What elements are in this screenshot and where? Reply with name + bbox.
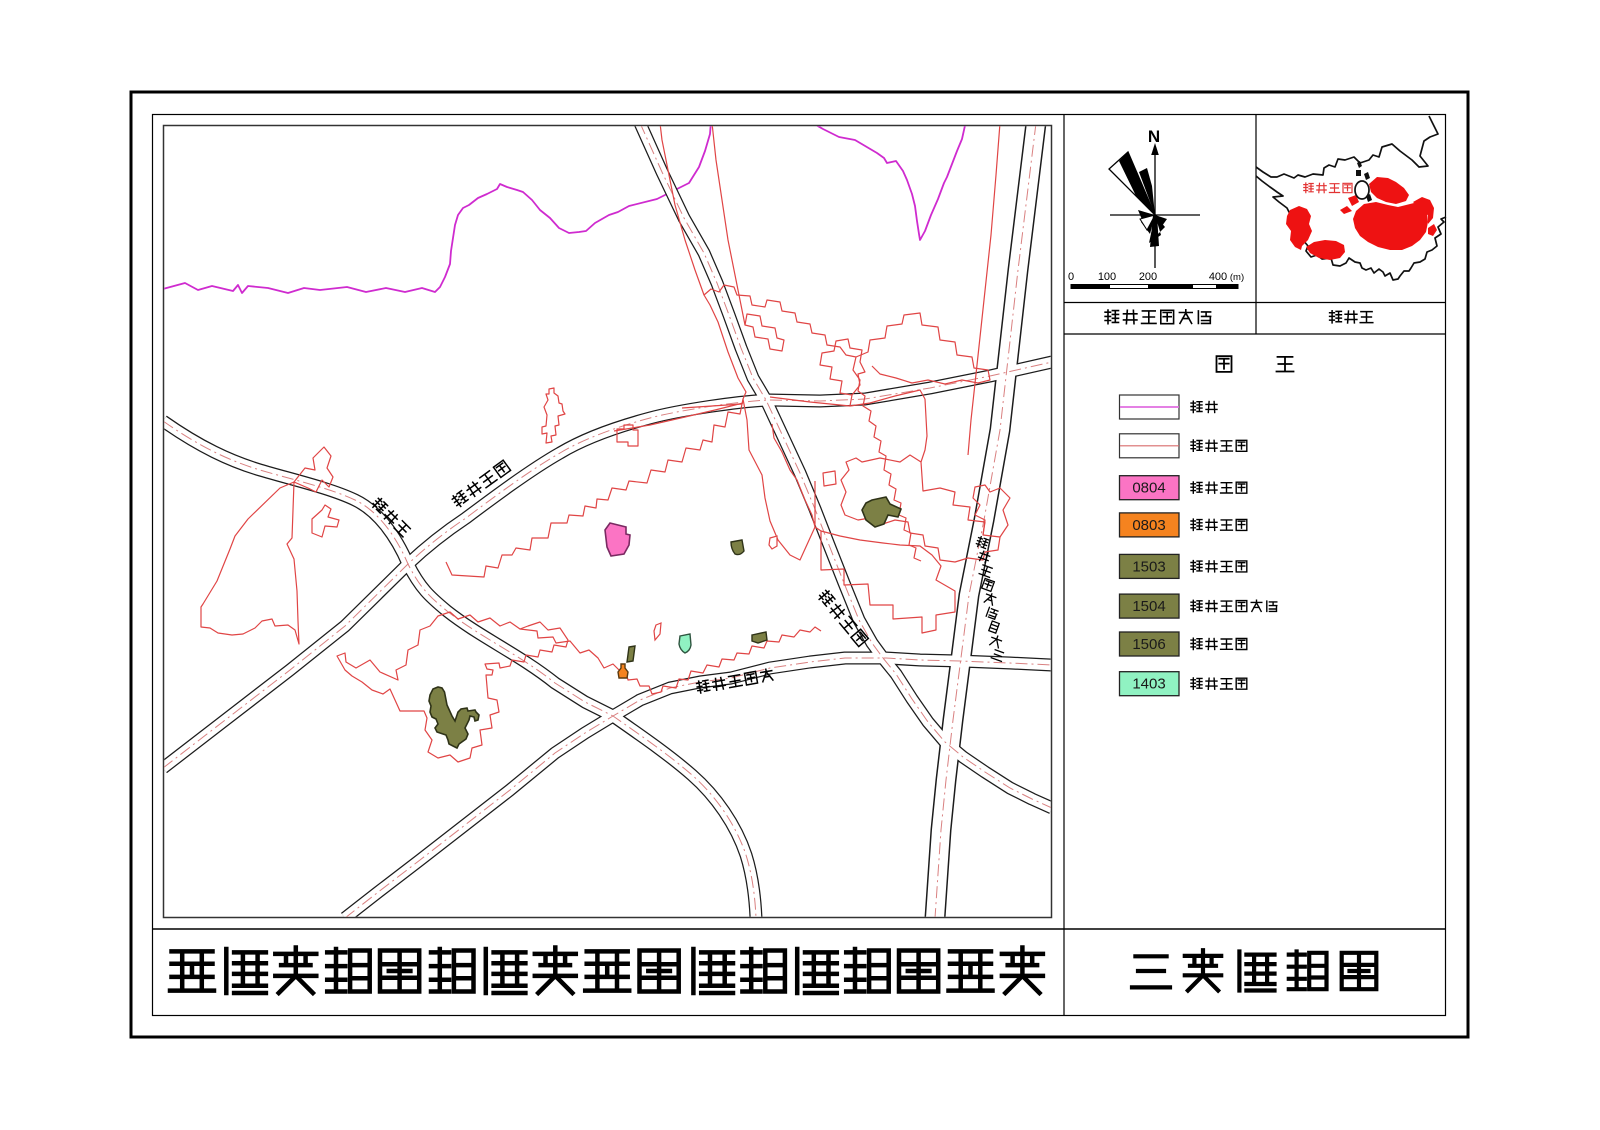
svg-text:N: N xyxy=(1148,127,1160,146)
svg-text:0803: 0803 xyxy=(1132,517,1165,534)
svg-text:1503: 1503 xyxy=(1132,558,1165,575)
svg-text:0: 0 xyxy=(1068,271,1074,283)
svg-text:1504: 1504 xyxy=(1132,598,1165,615)
svg-text:(m): (m) xyxy=(1230,272,1244,283)
svg-text:1506: 1506 xyxy=(1132,636,1165,653)
svg-text:400: 400 xyxy=(1209,271,1227,283)
svg-text:1403: 1403 xyxy=(1132,676,1165,693)
svg-text:100: 100 xyxy=(1098,271,1116,283)
svg-text:200: 200 xyxy=(1139,271,1157,283)
svg-text:0804: 0804 xyxy=(1132,480,1165,497)
